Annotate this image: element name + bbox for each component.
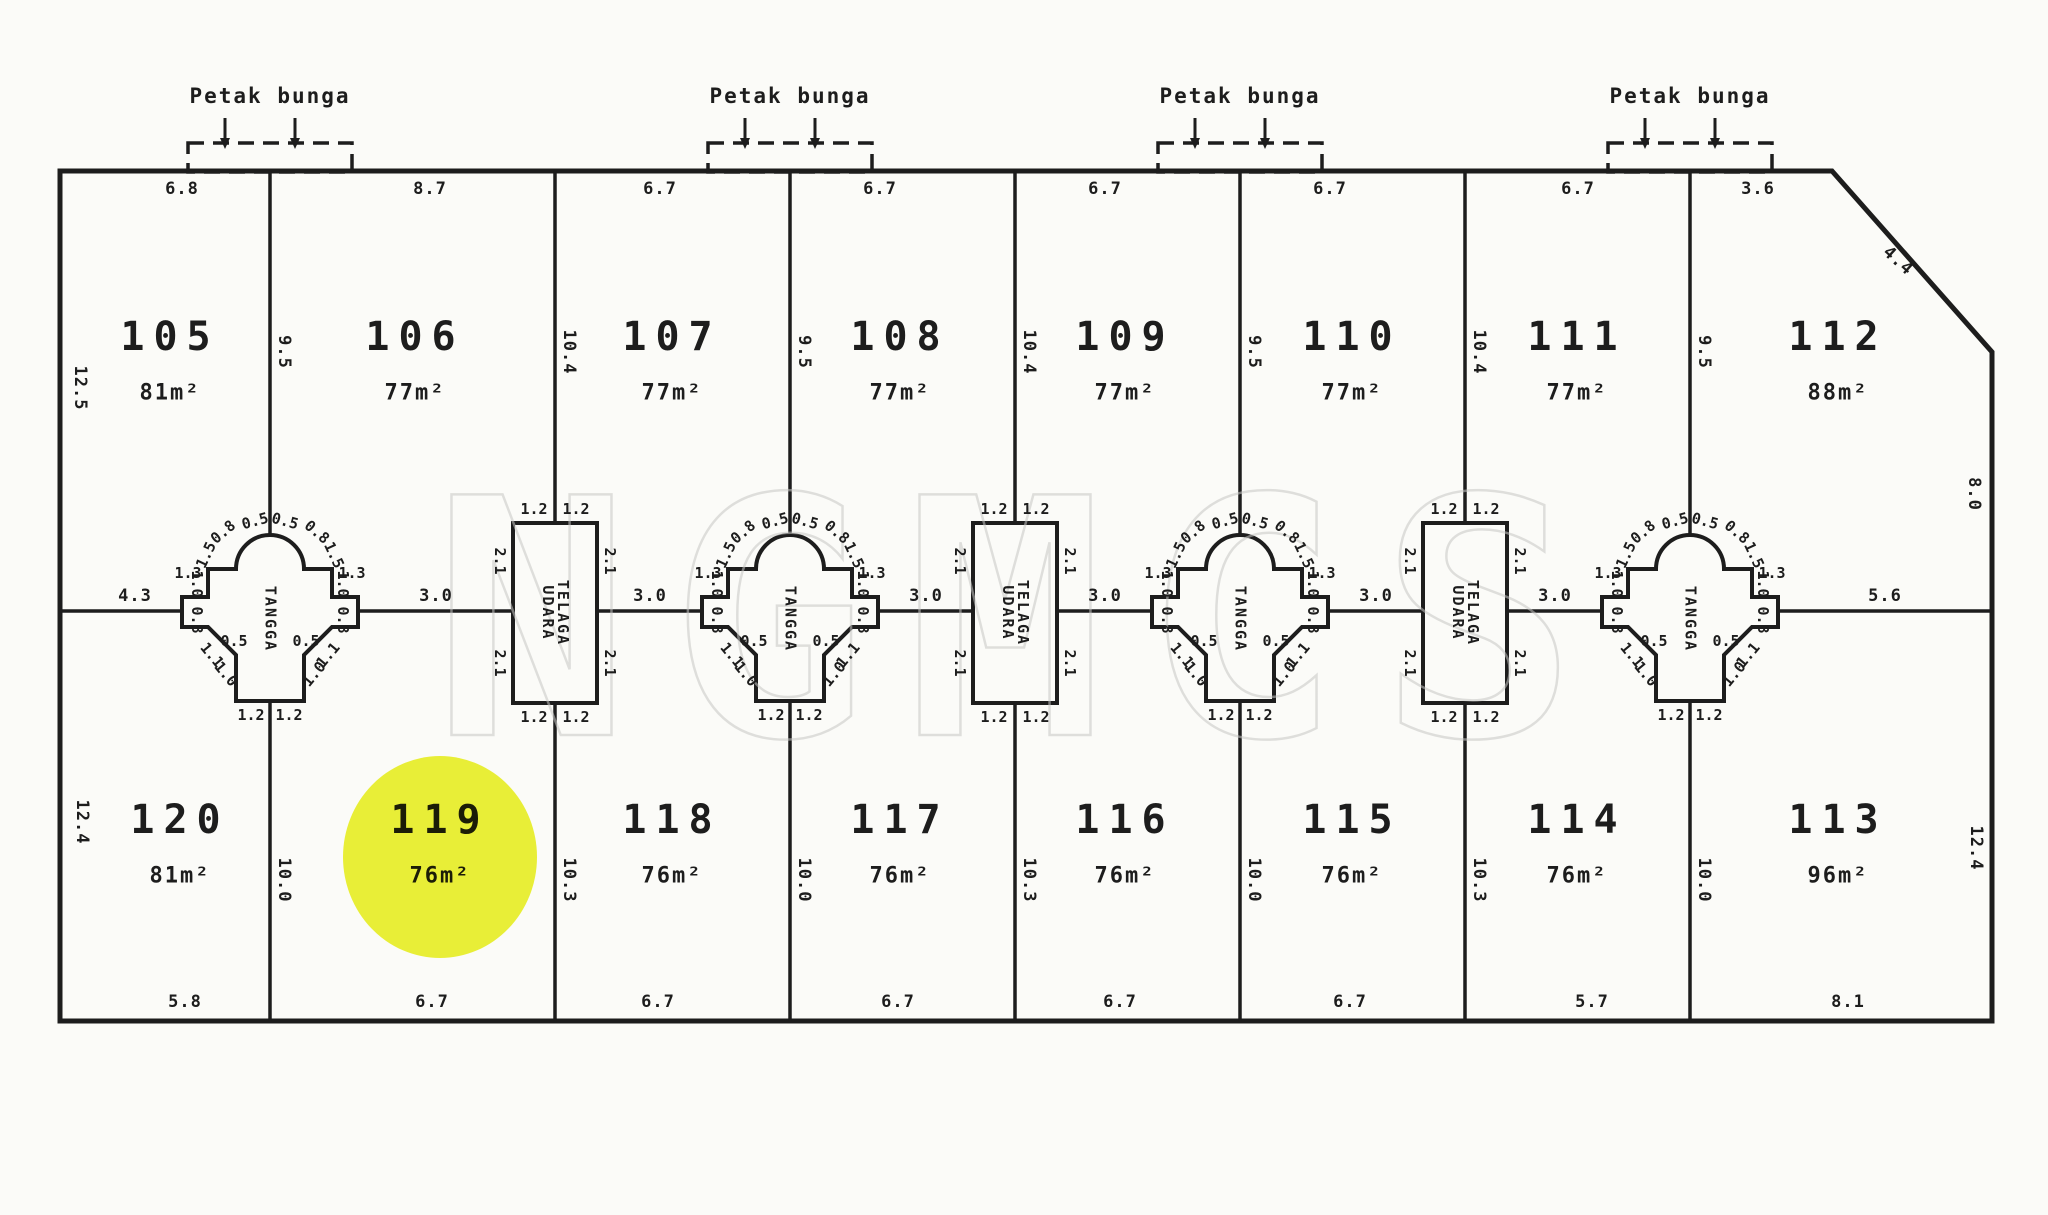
top-edge-dim: 6.7 [1313, 179, 1347, 199]
bottom-edge-dim: 5.7 [1575, 992, 1609, 1012]
air-well-label-line: TELAGA [555, 580, 570, 646]
lot-number: 111 [1527, 314, 1626, 360]
upper-divider-dim: 9.5 [794, 335, 814, 369]
stair-dim: 1.0 [1754, 570, 1772, 597]
lot-number: 113 [1788, 797, 1887, 843]
lower-divider-dim: 10.0 [1244, 858, 1264, 903]
air-well-dim: 1.2 [980, 500, 1007, 518]
lot-area: 76m² [1322, 864, 1383, 889]
lot-area: 77m² [1095, 381, 1156, 406]
lot-area: 76m² [642, 864, 703, 889]
stair-dim: 1.0 [854, 570, 872, 597]
bottom-edge-dim: 5.8 [168, 992, 202, 1012]
mid-line-dim: 3.0 [1538, 586, 1572, 606]
stair-dim: 0.8 [188, 606, 206, 633]
stair-dim: 1.0 [708, 570, 726, 597]
mid-line-dim: 5.6 [1868, 586, 1902, 606]
air-well-dim: 1.2 [1022, 500, 1049, 518]
lot-area: 76m² [870, 864, 931, 889]
mid-line-dim: 3.0 [909, 586, 943, 606]
stair-dim: 0.5 [790, 509, 821, 533]
plan-labels: Petak bungaPetak bungaPetak bungaPetak b… [0, 0, 2048, 1215]
stair-dim: 0.5 [1640, 632, 1667, 650]
stair-label: TANGGA [783, 586, 798, 652]
upper-divider-dim: 10.4 [559, 330, 579, 375]
air-well-dim: 1.2 [1472, 500, 1499, 518]
stair-dim: 1.2 [1695, 706, 1722, 724]
stair-dim: 0.5 [760, 509, 791, 533]
air-well-label-line: UDARA [1000, 580, 1015, 646]
bottom-edge-dim: 6.7 [881, 992, 915, 1012]
highlight-circle [343, 756, 537, 958]
lot-number: 116 [1075, 797, 1174, 843]
mid-line-dim: 3.0 [633, 586, 667, 606]
air-well-dim: 2.1 [601, 547, 619, 574]
lot-area: 77m² [870, 381, 931, 406]
lot-number: 120 [130, 797, 229, 843]
stair-dim: 0.5 [812, 632, 839, 650]
lot-area: 76m² [1095, 864, 1156, 889]
lot-area: 81m² [140, 381, 201, 406]
lot-area: 96m² [1808, 864, 1869, 889]
lot-area: 77m² [385, 381, 446, 406]
lower-divider-dim: 10.0 [1694, 858, 1714, 903]
stair-dim: 0.5 [740, 632, 767, 650]
lot-number: 109 [1075, 314, 1174, 360]
lot-number: 117 [850, 797, 949, 843]
upper-divider-dim: 9.5 [1694, 335, 1714, 369]
lot-number: 108 [850, 314, 949, 360]
lot-area: 77m² [642, 381, 703, 406]
air-well-dim: 1.2 [562, 708, 589, 726]
air-well-dim: 1.2 [1430, 500, 1457, 518]
top-edge-dim: 6.7 [1561, 179, 1595, 199]
edge-dim: 8.0 [1964, 477, 1984, 511]
stair-label: TANGGA [1233, 586, 1248, 652]
bottom-edge-dim: 6.7 [415, 992, 449, 1012]
air-well-dim: 1.2 [520, 500, 547, 518]
stair-dim: 0.5 [1712, 632, 1739, 650]
air-well-label-line: TELAGA [1465, 580, 1480, 646]
stair-dim: 0.8 [1754, 606, 1772, 633]
upper-divider-dim: 9.5 [1244, 335, 1264, 369]
air-well-dim: 1.2 [1022, 708, 1049, 726]
scanned-lot-plan: NGMCS Petak bungaPetak bungaPetak bungaP… [0, 0, 2048, 1215]
bottom-edge-dim: 8.1 [1831, 992, 1865, 1012]
stair-dim: 1.2 [1245, 706, 1272, 724]
stair-dim: 0.5 [1690, 509, 1721, 533]
air-well-dim: 2.1 [491, 547, 509, 574]
stair-dim: 1.0 [188, 570, 206, 597]
lot-number: 114 [1527, 797, 1626, 843]
stair-dim: 1.2 [1657, 706, 1684, 724]
stair-dim: 1.2 [757, 706, 784, 724]
top-edge-dim: 6.8 [165, 179, 199, 199]
air-well-dim: 2.1 [491, 649, 509, 676]
stair-dim: 1.2 [237, 706, 264, 724]
edge-dim: 12.4 [72, 800, 92, 845]
air-well-dim: 2.1 [1061, 649, 1079, 676]
flower-bed-label: Petak bunga [709, 84, 870, 108]
upper-divider-dim: 10.4 [1019, 330, 1039, 375]
air-well-label: TELAGAUDARA [1450, 580, 1480, 646]
lot-number: 107 [622, 314, 721, 360]
air-well-dim: 2.1 [1401, 547, 1419, 574]
lower-divider-dim: 10.3 [1019, 858, 1039, 903]
stair-dim: 0.5 [1190, 632, 1217, 650]
lot-number: 118 [622, 797, 721, 843]
top-edge-dim: 8.7 [413, 179, 447, 199]
stair-dim: 0.5 [1262, 632, 1289, 650]
stair-dim: 0.5 [1660, 509, 1691, 533]
stair-dim: 1.2 [1207, 706, 1234, 724]
lower-divider-dim: 10.0 [274, 858, 294, 903]
stair-dim: 1.2 [275, 706, 302, 724]
lot-number: 106 [365, 314, 464, 360]
stair-dim: 0.5 [292, 632, 319, 650]
lot-area: 76m² [1547, 864, 1608, 889]
top-edge-dim: 3.6 [1741, 179, 1775, 199]
stair-dim: 0.8 [334, 606, 352, 633]
air-well-label: TELAGAUDARA [1000, 580, 1030, 646]
stair-dim: 0.8 [1304, 606, 1322, 633]
stair-dim: 1.0 [334, 570, 352, 597]
mid-line-dim: 4.3 [118, 586, 152, 606]
top-edge-dim: 6.7 [863, 179, 897, 199]
air-well-dim: 1.2 [1472, 708, 1499, 726]
air-well-dim: 2.1 [1511, 547, 1529, 574]
air-well-dim: 2.1 [1511, 649, 1529, 676]
air-well-dim: 2.1 [1061, 547, 1079, 574]
air-well-dim: 2.1 [1401, 649, 1419, 676]
top-edge-dim: 6.7 [1088, 179, 1122, 199]
stair-label: TANGGA [263, 586, 278, 652]
stair-dim: 0.5 [220, 632, 247, 650]
stair-label: TANGGA [1683, 586, 1698, 652]
stair-dim: 1.0 [1304, 570, 1322, 597]
mid-line-dim: 3.0 [419, 586, 453, 606]
stair-dim: 0.5 [1210, 509, 1241, 533]
lower-divider-dim: 10.0 [794, 858, 814, 903]
lot-number: 112 [1788, 314, 1887, 360]
lower-divider-dim: 10.3 [1469, 858, 1489, 903]
air-well-dim: 2.1 [601, 649, 619, 676]
stair-dim: 0.8 [854, 606, 872, 633]
stair-dim: 0.5 [240, 509, 271, 533]
edge-dim: 4.4 [1879, 242, 1917, 279]
stair-dim: 1.0 [1608, 570, 1626, 597]
lot-number: 105 [120, 314, 219, 360]
air-well-label: TELAGAUDARA [540, 580, 570, 646]
air-well-label-line: UDARA [540, 580, 555, 646]
stair-dim: 1.0 [1158, 570, 1176, 597]
lot-number: 115 [1302, 797, 1401, 843]
air-well-dim: 1.2 [520, 708, 547, 726]
flower-bed-label: Petak bunga [1159, 84, 1320, 108]
air-well-dim: 2.1 [951, 547, 969, 574]
bottom-edge-dim: 6.7 [1333, 992, 1367, 1012]
air-well-dim: 1.2 [1430, 708, 1457, 726]
stair-dim: 0.8 [708, 606, 726, 633]
air-well-label-line: TELAGA [1015, 580, 1030, 646]
stair-dim: 0.5 [270, 509, 301, 533]
lot-number: 110 [1302, 314, 1401, 360]
edge-dim: 12.5 [70, 366, 90, 411]
upper-divider-dim: 10.4 [1469, 330, 1489, 375]
bottom-edge-dim: 6.7 [1103, 992, 1137, 1012]
air-well-label-line: UDARA [1450, 580, 1465, 646]
stair-dim: 0.8 [1608, 606, 1626, 633]
top-edge-dim: 6.7 [643, 179, 677, 199]
bottom-edge-dim: 6.7 [641, 992, 675, 1012]
upper-divider-dim: 9.5 [274, 335, 294, 369]
lower-divider-dim: 10.3 [559, 858, 579, 903]
stair-dim: 1.2 [795, 706, 822, 724]
lot-area: 88m² [1808, 381, 1869, 406]
air-well-dim: 2.1 [951, 649, 969, 676]
lot-area: 81m² [150, 864, 211, 889]
air-well-dim: 1.2 [980, 708, 1007, 726]
mid-line-dim: 3.0 [1359, 586, 1393, 606]
stair-dim: 0.5 [1240, 509, 1271, 533]
lot-area: 77m² [1547, 381, 1608, 406]
flower-bed-label: Petak bunga [1609, 84, 1770, 108]
stair-dim: 0.8 [1158, 606, 1176, 633]
lot-area: 77m² [1322, 381, 1383, 406]
edge-dim: 12.4 [1966, 826, 1986, 871]
air-well-dim: 1.2 [562, 500, 589, 518]
flower-bed-label: Petak bunga [189, 84, 350, 108]
mid-line-dim: 3.0 [1088, 586, 1122, 606]
